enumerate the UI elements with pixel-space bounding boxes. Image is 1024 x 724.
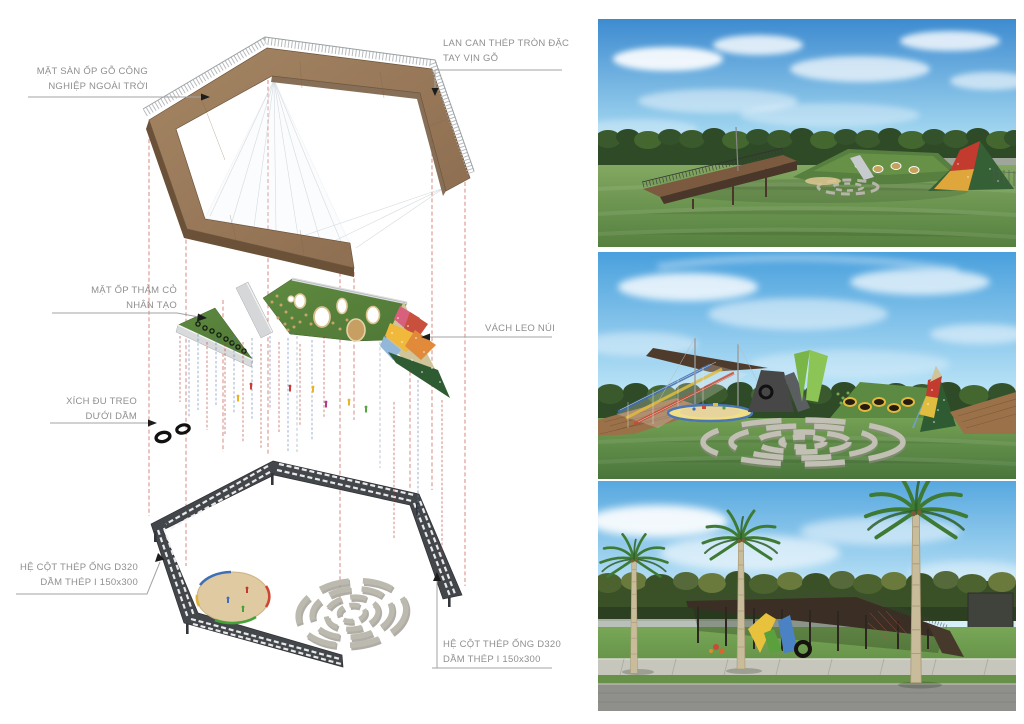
render-overview-field <box>598 19 1016 247</box>
label-line: DƯỚI DẦM <box>40 409 137 424</box>
exploded-axonometric-diagram <box>0 0 598 724</box>
presentation-sheet: MẶT SÀN ỐP GỖ CÔNG NGHIỆP NGOÀI TRỜI LAN… <box>0 0 1024 724</box>
wood-deck-ring <box>143 37 474 277</box>
label-line: VÁCH LEO NÚI <box>485 321 595 336</box>
render-street-scene <box>598 481 1016 711</box>
label-line: XÍCH ĐU TREO <box>40 394 137 409</box>
turf-layer <box>176 279 450 398</box>
grass <box>598 418 1016 479</box>
label-deck-surface: MẶT SÀN ỐP GỖ CÔNG NGHIỆP NGOÀI TRỜI <box>18 64 148 94</box>
render-closeup-scene <box>598 252 1016 479</box>
label-line: MẶT SÀN ỐP GỖ CÔNG <box>18 64 148 79</box>
sand-pit <box>197 572 270 623</box>
label-line: MẶT ỐP THẢM CỎ <box>40 283 177 298</box>
projection-lines-blue <box>297 336 380 468</box>
tire-swings <box>155 424 190 443</box>
steel-truss-ring <box>151 461 462 667</box>
children-figures <box>237 383 368 413</box>
label-line: TAY VỊN GỖ <box>443 51 583 66</box>
label-line: DẦM THÉP I 150x300 <box>443 652 573 667</box>
label-line: NGHIỆP NGOÀI TRỜI <box>18 79 148 94</box>
label-line: DẦM THÉP I 150x300 <box>8 575 138 590</box>
label-tire-swing: XÍCH ĐU TREO DƯỚI DẦM <box>40 394 137 424</box>
label-steel-structure-left: HỆ CỘT THÉP ỐNG D320 DẦM THÉP I 150x300 <box>8 560 138 590</box>
label-steel-structure-right: HỆ CỘT THÉP ỐNG D320 DẦM THÉP I 150x300 <box>443 637 573 667</box>
label-artificial-turf: MẶT ỐP THẢM CỎ NHÂN TẠO <box>40 283 177 313</box>
label-climbing-wall: VÁCH LEO NÚI <box>485 321 595 336</box>
stone-spiral-seats <box>295 575 410 652</box>
label-line: LAN CAN THÉP TRÒN ĐẶC <box>443 36 583 51</box>
label-line: NHÂN TẠO <box>40 298 177 313</box>
render-overview-scene <box>598 19 1016 247</box>
render-playground-closeup <box>598 252 1016 479</box>
label-railing: LAN CAN THÉP TRÒN ĐẶC TAY VỊN GỖ <box>443 36 583 66</box>
grass-strip <box>598 675 1016 684</box>
label-line: HỆ CỘT THÉP ỐNG D320 <box>443 637 573 652</box>
sidewalk <box>598 659 1016 675</box>
label-line: HỆ CỘT THÉP ỐNG D320 <box>8 560 138 575</box>
road <box>598 684 1016 711</box>
safety-net <box>205 80 444 248</box>
sand-area <box>805 177 841 185</box>
render-street-view <box>598 481 1016 711</box>
